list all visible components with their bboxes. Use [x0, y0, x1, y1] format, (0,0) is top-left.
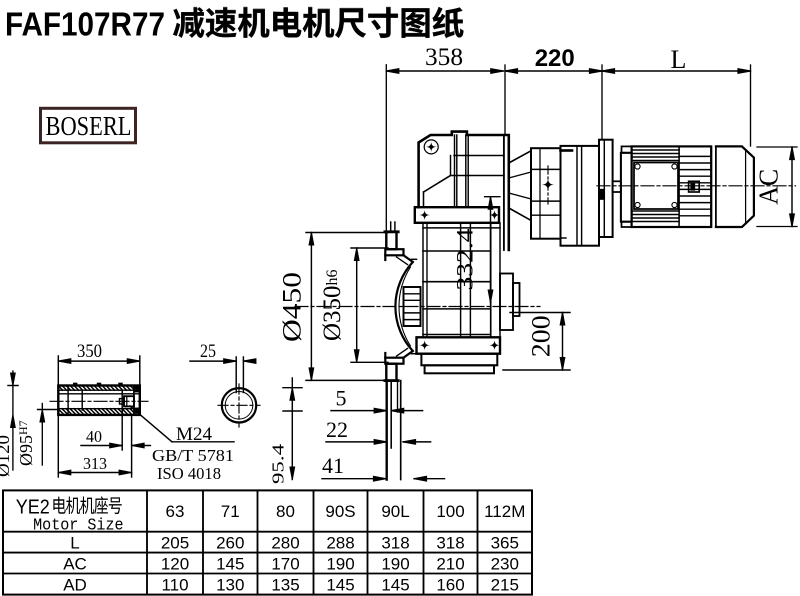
svg-text:22: 22: [326, 417, 348, 442]
svg-text:318: 318: [381, 534, 409, 553]
svg-text:BOSERL: BOSERL: [46, 110, 132, 141]
svg-text:95.4: 95.4: [269, 443, 288, 484]
svg-text:Ø120: Ø120: [0, 435, 13, 477]
svg-text:200: 200: [527, 315, 556, 357]
svg-text:130: 130: [216, 575, 244, 594]
svg-text:160: 160: [436, 575, 464, 594]
svg-text:260: 260: [216, 534, 244, 553]
svg-text:Ø450: Ø450: [277, 272, 306, 342]
svg-text:90L: 90L: [381, 502, 409, 521]
svg-text:318: 318: [436, 534, 464, 553]
svg-text:332.4: 332.4: [453, 228, 478, 291]
svg-text:GB/T 5781: GB/T 5781: [152, 446, 234, 465]
svg-text:100: 100: [436, 502, 464, 521]
svg-text:AD: AD: [63, 575, 87, 594]
svg-text:365: 365: [491, 534, 519, 553]
svg-text:313: 313: [83, 454, 107, 473]
svg-text:110: 110: [161, 575, 188, 594]
svg-text:135: 135: [271, 575, 299, 594]
svg-text:112M: 112M: [484, 502, 525, 521]
svg-text:Motor Size: Motor Size: [33, 516, 124, 535]
svg-text:358: 358: [425, 44, 463, 71]
svg-text:120: 120: [161, 554, 189, 573]
svg-text:M24: M24: [176, 424, 212, 445]
svg-text:25: 25: [200, 341, 216, 362]
svg-text:40: 40: [86, 427, 102, 446]
svg-text:190: 190: [381, 554, 409, 573]
svg-text:210: 210: [436, 554, 464, 573]
svg-text:L: L: [670, 45, 686, 74]
svg-text:145: 145: [381, 575, 409, 594]
svg-text:145: 145: [216, 554, 244, 573]
svg-text:190: 190: [326, 554, 354, 573]
svg-text:ISO 4018: ISO 4018: [157, 464, 221, 483]
svg-text:63: 63: [166, 502, 185, 521]
svg-text:145: 145: [326, 575, 354, 594]
svg-text:80: 80: [276, 502, 295, 521]
svg-text:288: 288: [326, 534, 354, 553]
svg-text:AC: AC: [754, 169, 784, 205]
svg-text:41: 41: [322, 453, 344, 478]
svg-text:280: 280: [271, 534, 299, 553]
svg-text:FAF107R77: FAF107R77: [5, 7, 165, 44]
svg-text:215: 215: [491, 575, 519, 594]
svg-text:220: 220: [535, 45, 575, 72]
svg-text:350: 350: [77, 341, 102, 362]
svg-text:71: 71: [221, 502, 240, 521]
svg-text:L: L: [70, 534, 79, 553]
svg-text:AC: AC: [63, 554, 87, 573]
svg-text:170: 170: [271, 554, 299, 573]
svg-text:90S: 90S: [325, 502, 355, 521]
svg-text:230: 230: [491, 554, 519, 573]
svg-text:5: 5: [336, 386, 347, 411]
svg-text:205: 205: [161, 534, 189, 553]
